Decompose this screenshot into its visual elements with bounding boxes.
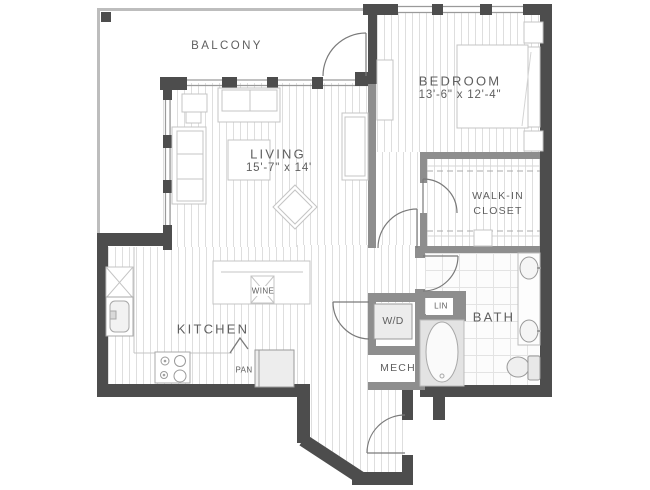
railing [97,8,365,11]
room-label-wine: WINE [252,287,275,296]
wall [368,4,377,84]
room-label-walkin-closet-2: CLOSET [473,205,522,217]
plan-graphics [0,0,650,490]
wall [163,135,172,148]
floor-plan: BALCONY LIVING 15'-7" x 14' BEDROOM 13'-… [0,0,650,490]
room-dims-living: 15'-7" x 14' [246,162,312,174]
room-label-bath: BATH [473,310,516,325]
railing-post [101,12,111,22]
wall [97,233,172,246]
closet-drawer-unit [474,230,492,246]
balcony-door-arc [323,33,366,76]
room-label-linen: LIN [434,302,448,311]
kitchen-faucet [110,311,116,319]
room-label-pantry: PAN [235,366,252,375]
toilet-bowl [507,357,529,377]
wall [480,4,492,15]
dresser [377,60,393,120]
wall [432,4,443,15]
room-label-laundry: W/D [382,315,403,327]
room-label-walkin-closet-1: WALK-IN [472,190,524,202]
wall [312,77,323,89]
wall [222,77,237,89]
room-label-living: LIVING [250,147,306,162]
room-label-kitchen: KITCHEN [177,322,249,337]
living-bedroom-wall [368,84,376,248]
nightstand [524,131,543,151]
wall [540,4,552,397]
hall-door-arc [333,302,369,339]
wall [267,77,278,89]
kitchen-fixtures [106,247,310,387]
wall [163,77,172,100]
room-dims-bedroom: 13'-6" x 12'-4" [419,89,502,101]
mech-wall [368,346,425,355]
entry-door-jamb [402,455,413,485]
closet-wall [420,152,427,183]
entry-door-arc [367,415,405,453]
closet-wall [420,152,540,159]
wall [297,390,310,443]
pantry-door [230,338,248,353]
vanity-sink [520,257,538,279]
bath-door-arc [423,256,458,291]
bedroom-door-arc [378,209,417,248]
bathtub [426,322,458,382]
wall [420,385,552,397]
refrigerator [255,350,294,387]
room-label-mech: MECH [380,362,416,374]
closet-wall [420,246,540,253]
accent-table-inner [278,190,312,224]
toilet-tank [528,356,540,380]
wall [163,180,172,193]
room-label-balcony: BALCONY [191,40,263,52]
ottoman [186,112,201,123]
armchair [182,94,207,112]
closet-door-arc [423,179,457,213]
vanity-sink [520,320,538,342]
angled-entry-wall [303,440,361,478]
mech-wall [368,382,425,390]
room-label-bedroom: BEDROOM [419,74,502,89]
railing [97,8,100,238]
tv-console-inner [345,117,365,176]
stove [155,352,190,383]
nightstand [524,22,543,43]
sofa-cushions [177,131,203,201]
